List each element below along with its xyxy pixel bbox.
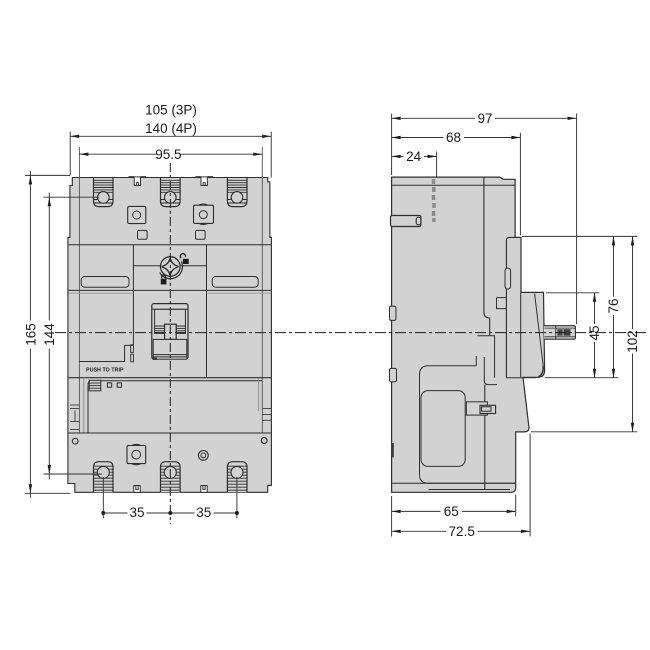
svg-text:35: 35 [196,505,211,520]
svg-text:65: 65 [444,504,459,519]
svg-text:105 (3P): 105 (3P) [145,103,197,118]
svg-text:24: 24 [406,149,422,164]
svg-text:76: 76 [606,298,621,313]
svg-text:97: 97 [477,111,492,126]
svg-text:35: 35 [129,505,144,520]
svg-text:PUSH TO TRIP: PUSH TO TRIP [86,367,124,373]
svg-text:102: 102 [625,330,640,353]
svg-text:144: 144 [42,323,57,346]
svg-text:68: 68 [446,130,461,145]
svg-text:45: 45 [587,325,602,340]
svg-text:95.5: 95.5 [155,147,181,162]
svg-text:72.5: 72.5 [449,524,475,539]
svg-text:140 (4P): 140 (4P) [145,121,197,136]
svg-text:165: 165 [23,323,38,346]
